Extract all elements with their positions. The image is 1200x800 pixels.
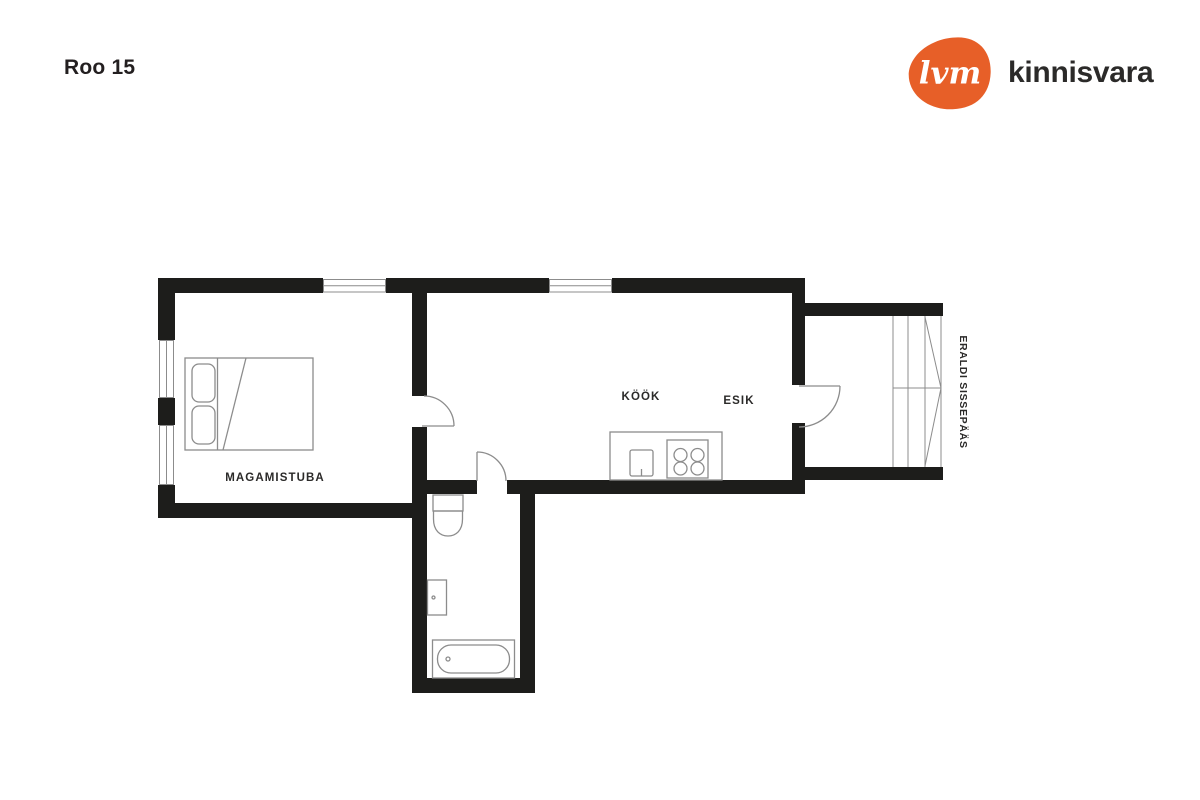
kitchen-counter	[610, 432, 722, 480]
bathtub	[433, 640, 515, 678]
page: Roo 15 lvm kinnisvara	[0, 0, 1200, 800]
entrance-door	[799, 386, 840, 427]
bathroom-door	[477, 452, 506, 481]
room-label-bedroom: MAGAMISTUBA	[225, 472, 325, 484]
bathroom-sink	[428, 580, 447, 615]
window-top-kitchen	[550, 280, 612, 293]
window-top-bedroom	[324, 280, 386, 293]
room-label-hallway: ESIK	[723, 395, 754, 407]
floor-plan: MAGAMISTUBA KÖÖK ESIK ERALDI SISSEPÄÄS	[0, 0, 1200, 800]
room-labels: MAGAMISTUBA KÖÖK ESIK ERALDI SISSEPÄÄS	[225, 335, 970, 484]
entrance-steps	[893, 316, 941, 467]
bed	[185, 358, 313, 450]
window-left-upper	[160, 341, 174, 398]
room-label-separate-entrance: ERALDI SISSEPÄÄS	[957, 335, 970, 448]
stove	[667, 440, 708, 478]
toilet	[433, 495, 463, 536]
walls	[158, 278, 943, 693]
window-left-lower	[160, 426, 174, 485]
room-label-kitchen: KÖÖK	[622, 390, 661, 403]
bedroom-door	[422, 396, 454, 426]
kitchen-sink	[630, 450, 653, 476]
